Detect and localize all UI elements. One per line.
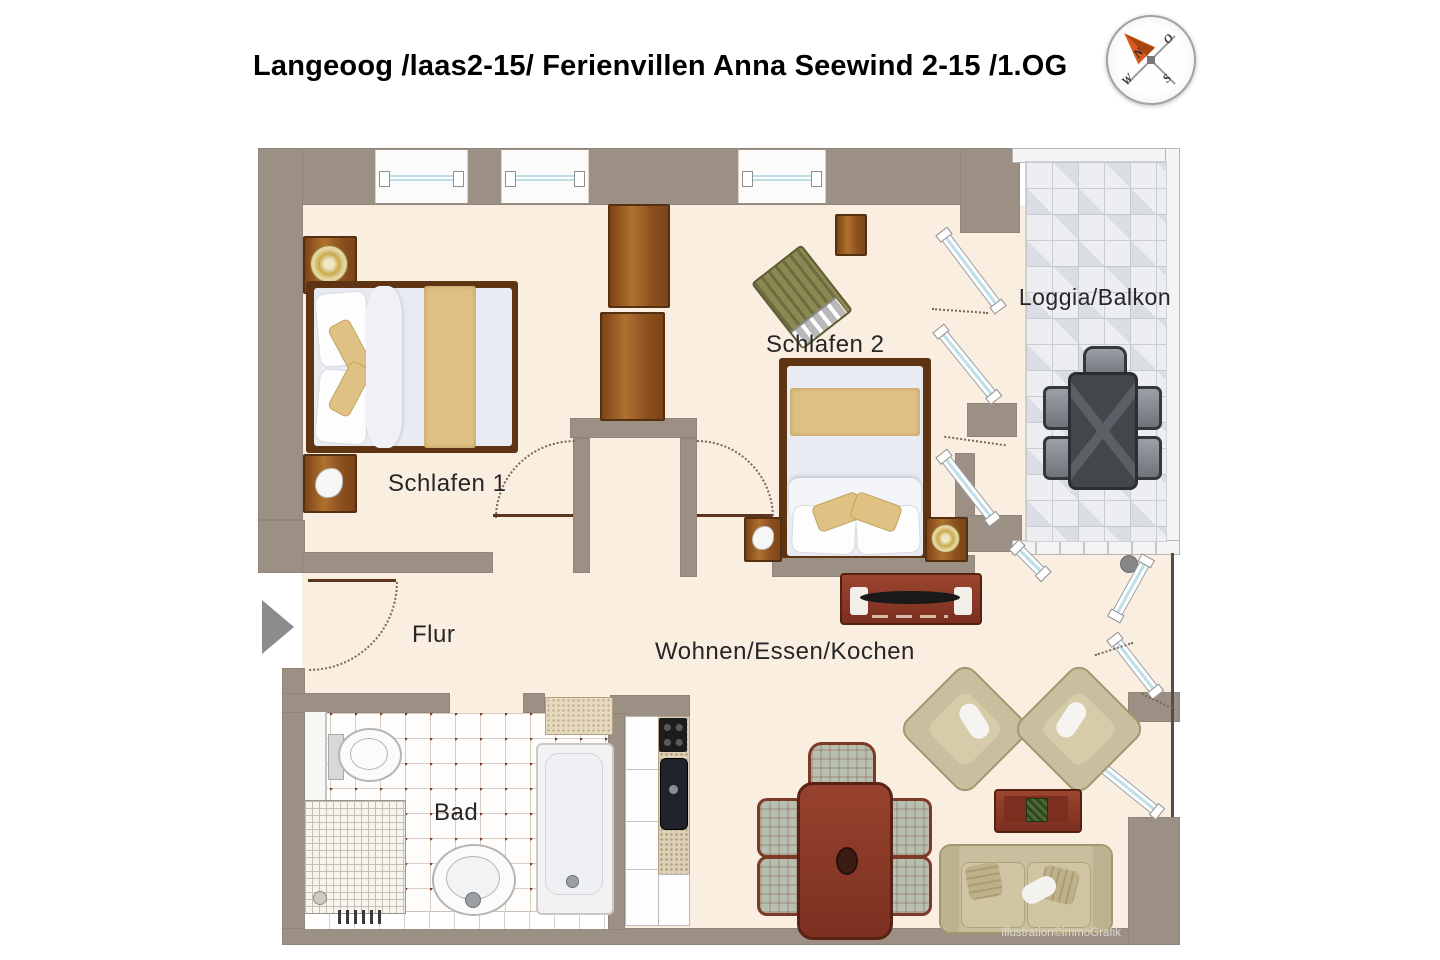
wall-right-block-b	[1128, 817, 1180, 945]
faucet-icon	[669, 785, 678, 794]
kitchen-sink	[660, 758, 688, 830]
window-jamb	[811, 171, 822, 187]
wall-topright-corner	[960, 148, 1020, 233]
sideboard-corner	[954, 587, 972, 615]
kitchen-cabinets	[625, 716, 662, 926]
page-title: Langeoog /laas2-15/ Ferienvillen Anna Se…	[253, 50, 1113, 83]
wall-bad-top-left	[282, 693, 450, 713]
wall-schlafen1-bottom	[302, 552, 493, 573]
window-schlafen2	[738, 150, 826, 203]
bed-sheet-fold	[366, 286, 402, 448]
cabinet-divider	[626, 869, 661, 870]
cabinet-divider	[626, 821, 661, 822]
window-schlafen1-right	[501, 150, 589, 203]
sofa	[939, 844, 1113, 934]
loggia-wall-right	[1165, 148, 1180, 555]
compass-letter-o: O	[1160, 31, 1177, 48]
entrance-arrow-icon	[262, 600, 294, 654]
window-glass	[748, 175, 816, 181]
armchair-cushion	[1039, 689, 1118, 768]
terrace-outer-edge	[1171, 553, 1174, 817]
sideboard-corner	[850, 587, 868, 615]
coffee-table	[994, 789, 1082, 833]
window-jamb	[505, 171, 516, 187]
window-glass	[511, 175, 579, 181]
shelf	[835, 214, 867, 256]
wardrobe	[600, 312, 665, 421]
bed-blanket	[790, 388, 920, 436]
sofa-pillow	[964, 861, 1003, 900]
wall-left-pilaster	[258, 520, 305, 573]
loggia-table	[1068, 372, 1138, 490]
tv-icon	[860, 591, 960, 604]
shower-fittings	[338, 910, 382, 924]
bathtub	[536, 743, 614, 915]
bad-wall-niche	[305, 712, 327, 802]
faucet-icon	[465, 892, 481, 908]
sideboard-handles	[872, 615, 948, 618]
window-schlafen1-left	[375, 150, 468, 203]
shower-drain	[313, 891, 327, 905]
table-center-detail	[836, 847, 858, 875]
wall-loggia-divider-mid	[967, 403, 1017, 437]
illustration-credit: Illustration©immoGrafik	[986, 927, 1136, 939]
room-label-flur: Flur	[412, 621, 455, 649]
floorplan-page: Langeoog /laas2-15/ Ferienvillen Anna Se…	[0, 0, 1440, 960]
window-glass	[385, 175, 458, 181]
loggia-railing-bottom	[1012, 540, 1180, 555]
toilet	[338, 728, 402, 782]
room-label-bad: Bad	[434, 799, 478, 827]
bed-blanket	[424, 286, 476, 448]
plant-icon	[1026, 798, 1048, 822]
door-leaf-entrance	[308, 579, 396, 582]
compass-letter-w: W	[1118, 71, 1136, 89]
wall-alcove-bar	[570, 418, 697, 438]
window-jamb	[379, 171, 390, 187]
door-leaf-schlafen1	[493, 514, 573, 517]
toilet-bowl	[350, 738, 388, 770]
kitchen-lower-cabinet	[658, 874, 690, 926]
bathtub-basin	[545, 753, 603, 895]
wall-top	[258, 148, 1020, 205]
table-lamp	[931, 524, 960, 553]
washing-machine	[545, 697, 613, 735]
dining-table	[797, 782, 893, 940]
cooktop	[659, 718, 687, 752]
wall-bad-top-right	[523, 693, 545, 713]
wardrobe	[608, 204, 670, 308]
compass-icon: N O S W	[1106, 15, 1196, 105]
room-label-wohnen: Wohnen/Essen/Kochen	[655, 638, 915, 666]
wall-stub-left-of-alcove	[573, 438, 590, 573]
compass-rose: N O S W	[1090, 0, 1212, 121]
washbasin	[432, 844, 516, 916]
shower	[304, 800, 406, 914]
window-jamb	[742, 171, 753, 187]
room-label-schlafen1: Schlafen 1	[388, 470, 506, 498]
wall-left-upper	[258, 148, 303, 520]
tv-sideboard	[840, 573, 982, 625]
wall-stub-right-of-alcove	[680, 438, 697, 577]
room-label-loggia: Loggia/Balkon	[1012, 284, 1178, 311]
compass-star-center	[1147, 56, 1155, 64]
table-lamp	[310, 245, 348, 283]
room-label-schlafen2: Schlafen 2	[766, 331, 884, 359]
cabinet-divider	[626, 769, 661, 770]
armchair-cushion	[925, 689, 1004, 768]
window-jamb	[574, 171, 585, 187]
faucet-icon	[566, 875, 579, 888]
window-jamb	[453, 171, 464, 187]
sofa-armrest	[1093, 846, 1111, 932]
sofa-armrest	[941, 846, 959, 932]
